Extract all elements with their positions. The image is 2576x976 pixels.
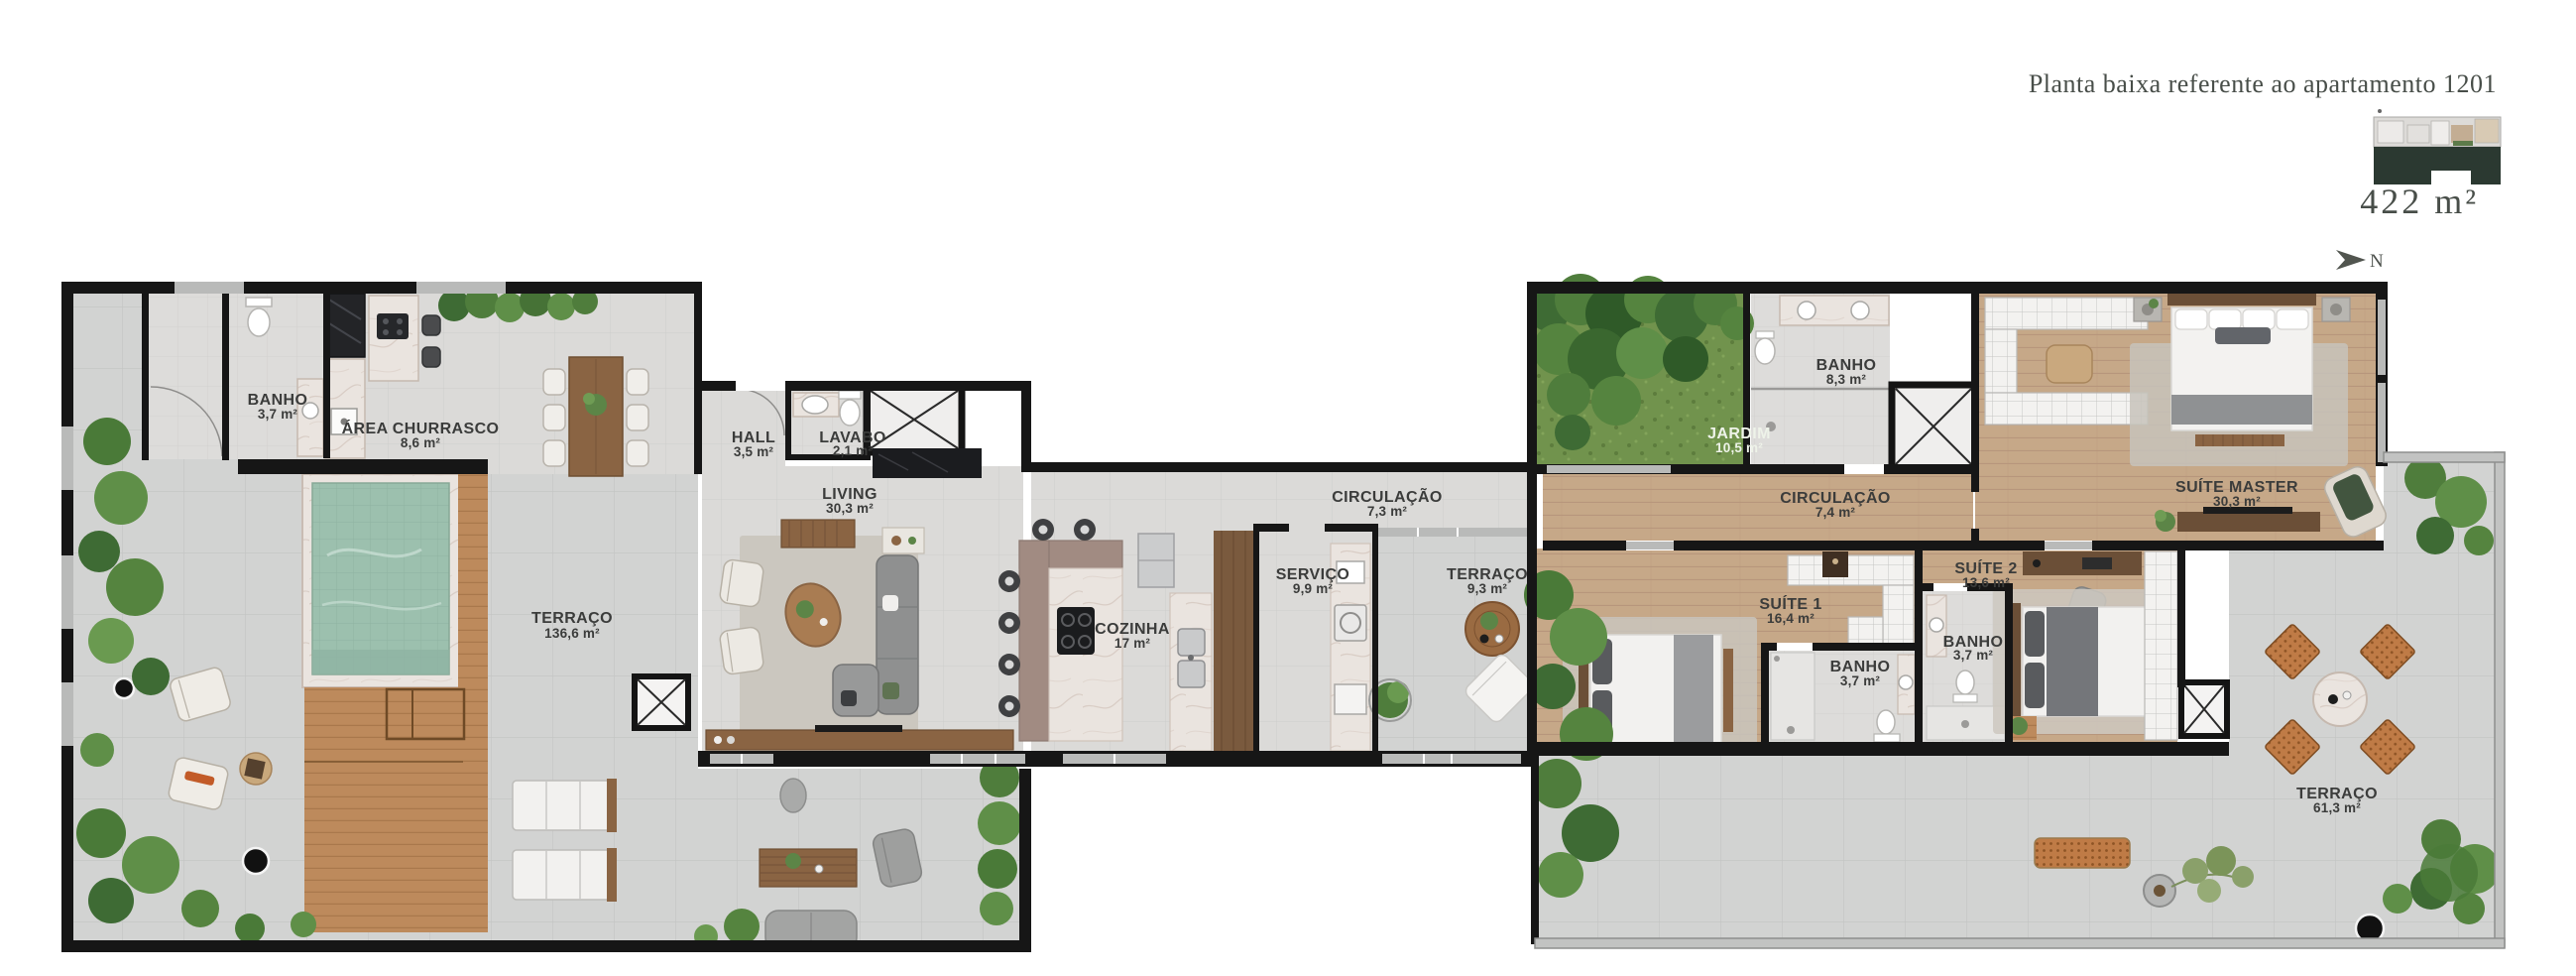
terrace-drain-2 (243, 848, 269, 874)
pool-water (312, 483, 449, 674)
north-label: N (2370, 251, 2384, 272)
label-suite-1-area: 16,4 m² (1767, 611, 1815, 626)
corner-table (882, 528, 924, 553)
elevator-2 (1892, 385, 1975, 468)
label-banho-suite-1-area: 3,7 m² (1840, 673, 1881, 688)
label-servico-area: 9,9 m² (1293, 581, 1334, 596)
closet-ottoman (2047, 345, 2092, 383)
wicker-bench (2035, 838, 2130, 868)
label-circulacao-1: CIRCULAÇÃO (1332, 486, 1443, 506)
sink-1 (1178, 629, 1205, 656)
label-suite-2-area: 13,6 m² (1962, 575, 2010, 590)
total-area: 422 m² (2360, 182, 2479, 221)
dining-table-6 (543, 357, 648, 476)
key-plan-mass (2374, 147, 2501, 184)
terrace-drain (114, 678, 134, 698)
floor-entrada (149, 294, 222, 459)
sink-2 (1178, 661, 1205, 687)
suite-master-tv-console (2177, 512, 2320, 532)
pool-deck (302, 474, 488, 932)
cooktop (1057, 607, 1095, 655)
label-lavabo-area: 2,1 m² (833, 443, 874, 458)
north-arrow-icon: N (2336, 250, 2384, 272)
floor-plan-svg: BANHO 3,7 m² ÁREA CHURRASCO 8,6 m² HALL … (0, 0, 2576, 976)
label-area-churrasco-area: 8,6 m² (401, 435, 441, 450)
label-terraco-principal: TERRAÇO (531, 610, 613, 627)
label-circulacao-2: CIRCULAÇÃO (1780, 487, 1891, 507)
terrace-shaft (635, 676, 688, 728)
header: Planta baixa referente ao apartamento 12… (2029, 69, 2501, 272)
floor-circulacao-1 (1031, 470, 1535, 533)
deck-side (458, 474, 488, 687)
label-terraco-servico-area: 9,3 m² (1467, 581, 1508, 596)
tv (815, 725, 902, 732)
label-jardim-area: 10,5 m² (1715, 440, 1763, 455)
label-banho-entrada-area: 3,7 m² (258, 407, 298, 422)
suite-2-closet (2145, 551, 2177, 740)
key-plan-thumbnail (2374, 109, 2501, 184)
round-table (2313, 672, 2367, 726)
floor-circulacao-2 (1543, 474, 1973, 541)
label-terraco-principal-area: 136,6 m² (544, 626, 600, 641)
label-banho-suite-2-area: 3,7 m² (1953, 648, 1994, 663)
label-circulacao-2-area: 7,4 m² (1815, 505, 1856, 520)
label-banho-social-area: 8,3 m² (1826, 372, 1867, 387)
label-terraco-suites-area: 61,3 m² (2313, 800, 2361, 815)
label-circulacao-1-area: 7,3 m² (1367, 504, 1408, 519)
closet-dark (873, 448, 982, 478)
label-living-area: 30,3 m² (826, 501, 874, 516)
deck-main (304, 687, 488, 932)
floor-plan-canvas: BANHO 3,7 m² ÁREA CHURRASCO 8,6 m² HALL … (0, 0, 2576, 976)
label-hall-area: 3,5 m² (734, 444, 774, 459)
page-title: Planta baixa referente ao apartamento 12… (2029, 69, 2497, 98)
label-cozinha-area: 17 m² (1114, 636, 1151, 651)
label-suite-master-area: 30,3 m² (2213, 494, 2261, 509)
sideboard (781, 520, 855, 548)
small-shaft (2181, 682, 2227, 736)
pool-bench (312, 650, 449, 674)
tv-console (706, 730, 1013, 750)
